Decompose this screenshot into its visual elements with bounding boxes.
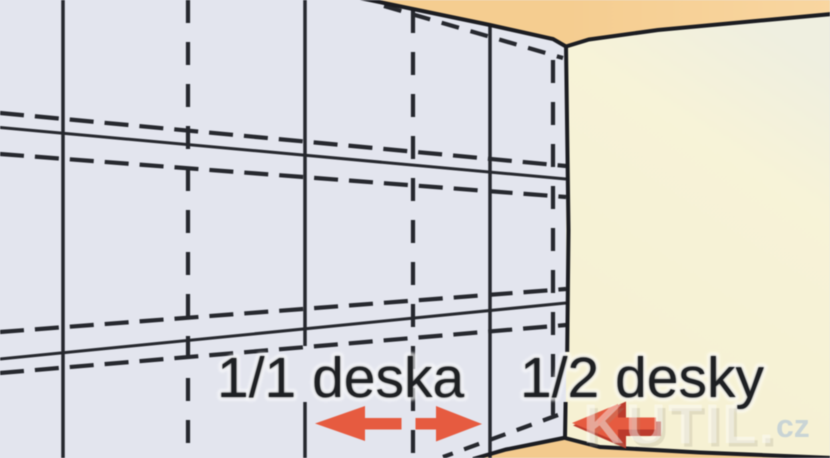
svg-text:1/1 deska: 1/1 deska: [217, 346, 464, 410]
svg-text:KUTIL.: KUTIL.: [583, 392, 774, 455]
svg-text:cz: cz: [776, 408, 810, 444]
